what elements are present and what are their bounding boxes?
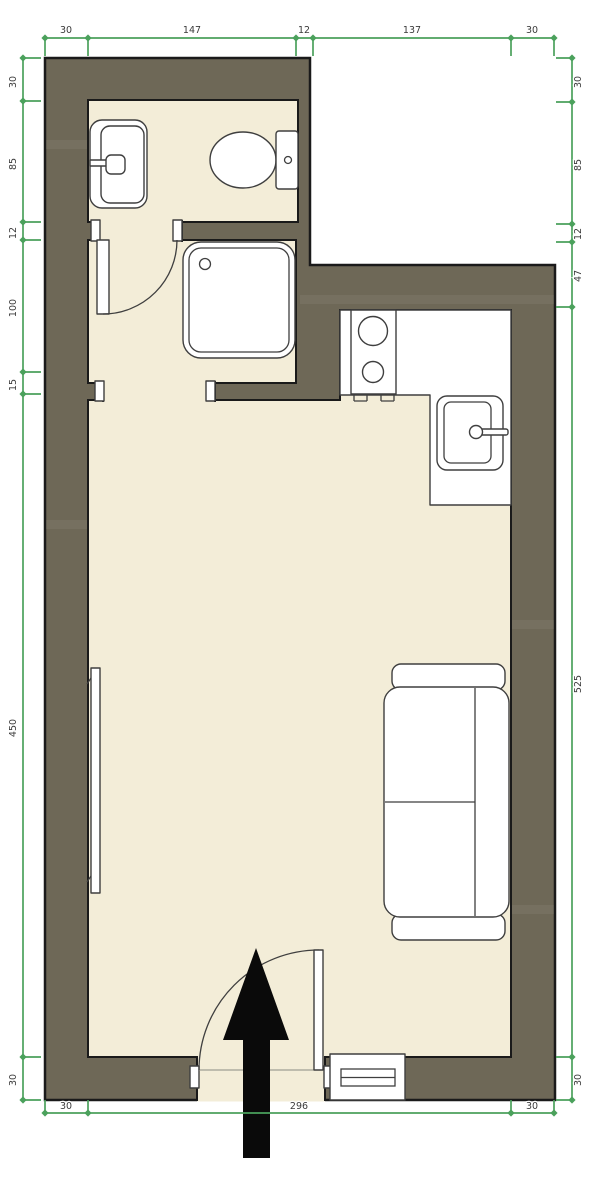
door-frame xyxy=(95,381,104,401)
sofa-armrest-top xyxy=(392,664,505,690)
window xyxy=(330,1054,405,1100)
kitchen-sink xyxy=(437,396,508,470)
dim-label: 30 xyxy=(526,1101,538,1112)
dim-label: 30 xyxy=(526,25,538,36)
door-frame xyxy=(173,220,182,241)
doorway-bathroom xyxy=(98,220,182,242)
dim-label: 85 xyxy=(573,159,584,171)
dim-label: 12 xyxy=(298,25,310,36)
cooktop xyxy=(351,310,396,401)
dim-label: 47 xyxy=(573,270,584,282)
dim-label: 30 xyxy=(573,76,584,88)
dim-label: 12 xyxy=(8,227,19,239)
shower-tray-outer xyxy=(183,242,295,358)
washbasin xyxy=(90,120,147,208)
dim-label: 15 xyxy=(8,379,19,391)
dim-ext-top xyxy=(45,38,554,56)
toilet-tank xyxy=(276,131,298,189)
interior-door-leaf xyxy=(97,240,109,314)
toilet-bowl xyxy=(210,132,276,188)
dim-label: 147 xyxy=(183,25,201,36)
burner-large xyxy=(359,317,388,346)
shower-tray xyxy=(183,242,295,358)
entrance-door-leaf xyxy=(314,950,323,1070)
radiator-panel xyxy=(91,668,100,893)
dim-label: 85 xyxy=(8,158,19,170)
door-frame xyxy=(206,381,215,401)
dim-label: 137 xyxy=(403,25,421,36)
dim-label: 525 xyxy=(573,675,584,693)
toilet xyxy=(210,131,298,189)
door-frame xyxy=(190,1066,199,1088)
floor-plan-page: 30 147 12 137 30 30 85 12 100 15 450 30 … xyxy=(0,0,600,1182)
dim-label: 30 xyxy=(60,25,72,36)
washbasin-faucet xyxy=(106,155,125,174)
dim-ext-left xyxy=(23,58,41,1100)
dim-label: 30 xyxy=(8,1074,19,1086)
doorway-shower-room xyxy=(103,381,215,402)
dim-label: 450 xyxy=(8,719,19,737)
door-frame xyxy=(91,220,100,241)
dim-label: 100 xyxy=(8,299,19,317)
kitchen-faucet xyxy=(470,426,483,439)
dim-label: 30 xyxy=(8,76,19,88)
dim-label: 30 xyxy=(573,1074,584,1086)
dim-ext-right xyxy=(556,58,572,1100)
dim-label: 12 xyxy=(573,228,584,240)
floor-plan: 30 147 12 137 30 30 85 12 100 15 450 30 … xyxy=(0,0,600,1182)
burner-small xyxy=(363,362,384,383)
dim-label: 30 xyxy=(60,1101,72,1112)
dim-label: 296 xyxy=(290,1101,308,1112)
sofa xyxy=(384,664,509,940)
sofa-armrest-bottom xyxy=(392,914,505,940)
